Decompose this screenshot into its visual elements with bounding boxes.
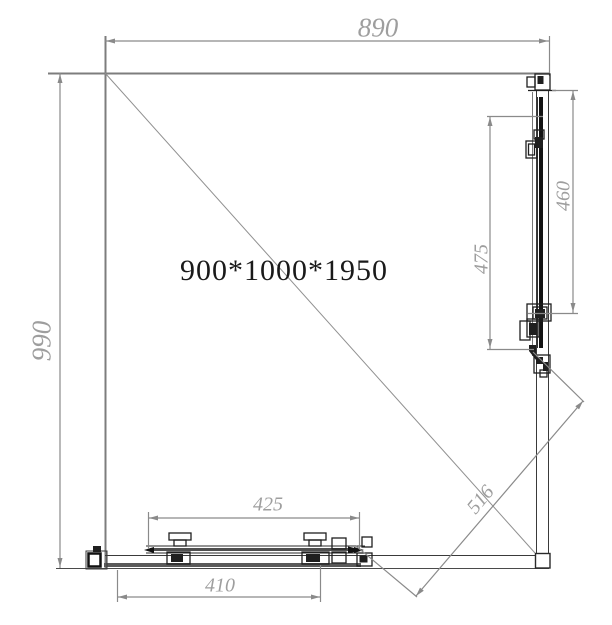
right-door-bottom-cluster <box>520 304 551 377</box>
enclosure-walls <box>48 36 549 568</box>
top-right-corner-bracket <box>527 74 556 91</box>
dim-label-460: 460 <box>553 181 576 211</box>
technical-drawing-canvas: 890 990 460 475 425 410 516 900*1000*195… <box>0 0 612 625</box>
dim-label-475: 475 <box>471 244 494 274</box>
enclosure-size-label: 900*1000*1950 <box>180 254 388 288</box>
drawing-linework <box>0 0 612 625</box>
dim-label-990: 990 <box>27 321 58 362</box>
dim-label-425: 425 <box>253 494 283 517</box>
dimension-425 <box>148 512 360 549</box>
dimension-990 <box>58 73 63 568</box>
diagonal-reference-line <box>105 73 535 553</box>
bottom-right-corner-post <box>536 554 551 569</box>
dim-label-410: 410 <box>205 575 235 598</box>
bottom-left-wall-bracket <box>86 546 107 569</box>
dim-label-890: 890 <box>358 13 399 44</box>
right-door-bottom-tip <box>529 345 536 360</box>
dimension-890 <box>105 36 550 76</box>
